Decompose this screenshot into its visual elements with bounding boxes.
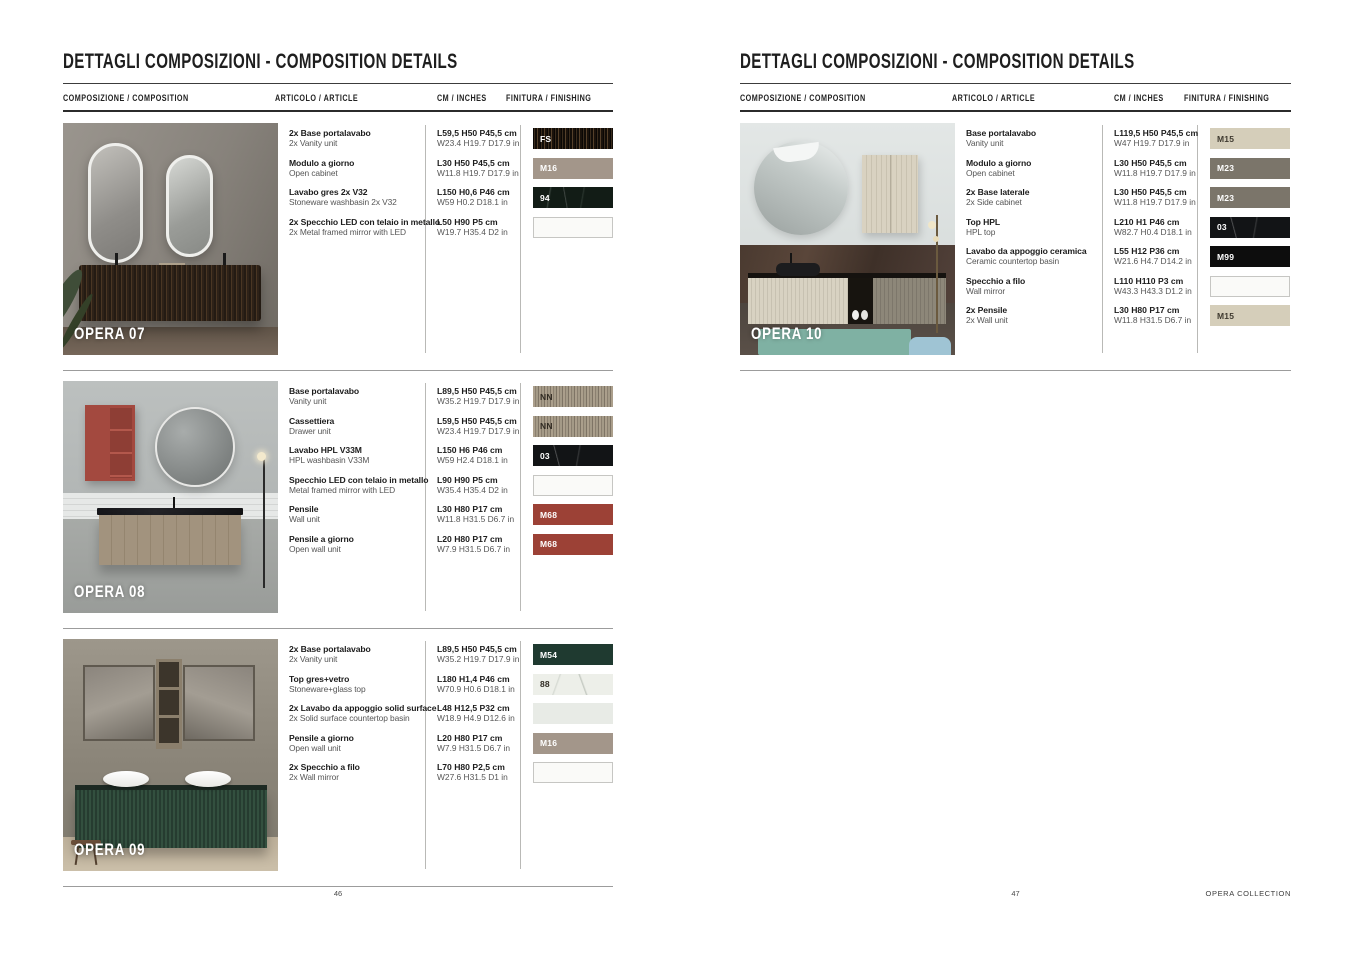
article-cell: Specchio a filo Wall mirror: [966, 276, 1114, 296]
article-name-en: 2x Vanity unit: [289, 654, 437, 664]
dimensions-cell: L70 H80 P2,5 cm W27.6 H31.5 D1 in: [437, 762, 533, 782]
dimensions-cm: L59,5 H50 P45,5 cm: [437, 416, 533, 426]
composition-section: OPERA 10 Base portalavabo Vanity unit L1…: [740, 123, 1291, 355]
finish-swatch: 03: [533, 445, 613, 466]
page-header: DETTAGLI COMPOSIZIONI - COMPOSITION DETA…: [740, 0, 1291, 123]
finish-swatch: [533, 475, 613, 496]
finish-swatch: M99: [1210, 246, 1290, 267]
dimensions-cm: L55 H12 P36 cm: [1114, 246, 1210, 256]
article-name-it: Pensile a giorno: [289, 733, 437, 743]
finish-code: M15: [1217, 134, 1234, 144]
dimensions-cell: L150 H0,6 P46 cm W59 H0.2 D18.1 in: [437, 187, 533, 207]
dimensions-cell: L150 H6 P46 cm W59 H2.4 D18.1 in: [437, 445, 533, 465]
article-name-en: Vanity unit: [966, 138, 1114, 148]
finishing-cell: M15: [1210, 305, 1290, 326]
article-rows: 2x Base portalavabo 2x Vanity unit L89,5…: [289, 644, 613, 792]
dimensions-inches: W35.2 H19.7 D17.9 in: [437, 654, 533, 664]
page-number: 46: [63, 889, 613, 898]
dimensions-cell: L20 H80 P17 cm W7.9 H31.5 D6.7 in: [437, 534, 533, 554]
finish-swatch: M15: [1210, 305, 1290, 326]
dimensions-cm: L110 H110 P3 cm: [1114, 276, 1210, 286]
mirror-shape: [166, 155, 213, 257]
article-rows: Base portalavabo Vanity unit L89,5 H50 P…: [289, 386, 613, 563]
finishing-cell: M15: [1210, 128, 1290, 149]
article-row: 2x Pensile 2x Wall unit L30 H80 P17 cm W…: [966, 305, 1291, 335]
header-rule-heavy: [63, 110, 613, 112]
column-header-composition: COMPOSIZIONE / COMPOSITION: [63, 93, 189, 103]
section-divider: [740, 370, 1291, 371]
article-name-en: HPL washbasin V33M: [289, 455, 437, 465]
header-rule: [63, 83, 613, 84]
vanity-shape: [748, 278, 848, 324]
page-footer: 47 OPERA COLLECTION: [740, 889, 1291, 903]
article-cell: Modulo a giorno Open cabinet: [966, 158, 1114, 178]
dimensions-cm: L30 H50 P45,5 cm: [1114, 187, 1210, 197]
composition-name: OPERA 09: [74, 840, 145, 860]
article-name-it: Lavabo HPL V33M: [289, 445, 437, 455]
article-cell: Cassettiera Drawer unit: [289, 416, 437, 436]
dimensions-cm: L89,5 H50 P45,5 cm: [437, 644, 533, 654]
sections-right: OPERA 10 Base portalavabo Vanity unit L1…: [740, 123, 1291, 381]
article-name-it: Specchio LED con telaio in metallo: [289, 475, 437, 485]
finishing-cell: [533, 762, 613, 783]
dimensions-cell: L89,5 H50 P45,5 cm W35.2 H19.7 D17.9 in: [437, 386, 533, 406]
page-right: DETTAGLI COMPOSIZIONI - COMPOSITION DETA…: [740, 0, 1291, 959]
dimensions-cell: L119,5 H50 P45,5 cm W47 H19.7 D17.9 in: [1114, 128, 1210, 148]
article-name-en: 2x Side cabinet: [966, 197, 1114, 207]
dimensions-inches: W11.8 H31.5 D6.7 in: [1114, 315, 1210, 325]
dimensions-cell: L30 H50 P45,5 cm W11.8 H19.7 D17.9 in: [1114, 187, 1210, 207]
article-row: Lavabo gres 2x V32 Stoneware washbasin 2…: [289, 187, 613, 217]
dimensions-cm: L150 H6 P46 cm: [437, 445, 533, 455]
finish-swatch: M54: [533, 644, 613, 665]
finishing-cell: M23: [1210, 187, 1290, 208]
composition-photo: OPERA 08: [63, 381, 278, 613]
finishing-cell: [533, 475, 613, 496]
article-cell: Modulo a giorno Open cabinet: [289, 158, 437, 178]
article-row: Modulo a giorno Open cabinet L30 H50 P45…: [966, 158, 1291, 188]
finish-code: M23: [1217, 193, 1234, 203]
article-name-it: Base portalavabo: [966, 128, 1114, 138]
catalog-spread: DETTAGLI COMPOSIZIONI - COMPOSITION DETA…: [0, 0, 1356, 959]
article-row: Top HPL HPL top L210 H1 P46 cm W82.7 H0.…: [966, 217, 1291, 247]
dimensions-inches: W27.6 H31.5 D1 in: [437, 772, 533, 782]
floor-lamp-shape: [936, 215, 938, 333]
section-divider: [63, 886, 613, 887]
dimensions-cell: L48 H12,5 P32 cm W18.9 H4.9 D12.6 in: [437, 703, 533, 723]
finishing-cell: M16: [533, 733, 613, 754]
finish-swatch: FS: [533, 128, 613, 149]
article-row: 2x Specchio a filo 2x Wall mirror L70 H8…: [289, 762, 613, 792]
basin-shape: [776, 263, 820, 276]
dimensions-cell: L59,5 H50 P45,5 cm W23.4 H19.7 D17.9 in: [437, 416, 533, 436]
dimensions-cell: L30 H80 P17 cm W11.8 H31.5 D6.7 in: [437, 504, 533, 524]
finishing-cell: 94: [533, 187, 613, 208]
article-name-it: Specchio a filo: [966, 276, 1114, 286]
article-row: Specchio a filo Wall mirror L110 H110 P3…: [966, 276, 1291, 306]
dimensions-inches: W82.7 H0.4 D18.1 in: [1114, 227, 1210, 237]
dimensions-inches: W43.3 H43.3 D1.2 in: [1114, 286, 1210, 296]
finishing-cell: NN: [533, 386, 613, 407]
finish-code: NN: [540, 392, 553, 402]
composition-name: OPERA 08: [74, 582, 145, 602]
dimensions-cell: L55 H12 P36 cm W21.6 H4.7 D14.2 in: [1114, 246, 1210, 266]
vanity-shape: [99, 515, 241, 565]
page-title: DETTAGLI COMPOSIZIONI - COMPOSITION DETA…: [740, 50, 1135, 74]
wall-cabinet-shape: [862, 155, 918, 233]
article-name-en: 2x Metal framed mirror with LED: [289, 227, 437, 237]
article-name-en: Vanity unit: [289, 396, 437, 406]
article-name-it: Pensile: [289, 504, 437, 514]
finish-swatch: M68: [533, 534, 613, 555]
composition-name: OPERA 10: [751, 324, 822, 344]
page-left: DETTAGLI COMPOSIZIONI - COMPOSITION DETA…: [63, 0, 613, 959]
mirror-shape: [754, 141, 848, 235]
page-header: DETTAGLI COMPOSIZIONI - COMPOSITION DETA…: [63, 0, 613, 123]
article-row: Cassettiera Drawer unit L59,5 H50 P45,5 …: [289, 416, 613, 446]
dimensions-cell: L20 H80 P17 cm W7.9 H31.5 D6.7 in: [437, 733, 533, 753]
mirror-shape: [83, 665, 155, 741]
finishing-cell: [533, 217, 613, 238]
countertop-shape: [97, 508, 243, 515]
dimensions-inches: W35.2 H19.7 D17.9 in: [437, 396, 533, 406]
composition-photo: OPERA 09: [63, 639, 278, 871]
dimensions-cm: L30 H50 P45,5 cm: [437, 158, 533, 168]
article-name-it: Base portalavabo: [289, 386, 437, 396]
mirror-shape: [155, 407, 235, 487]
column-header-finishing: FINITURA / FINISHING: [506, 93, 591, 103]
article-cell: 2x Specchio a filo 2x Wall mirror: [289, 762, 437, 782]
finish-swatch: M16: [533, 158, 613, 179]
article-cell: Pensile Wall unit: [289, 504, 437, 524]
dimensions-cm: L180 H1,4 P46 cm: [437, 674, 533, 684]
dimensions-cell: L110 H110 P3 cm W43.3 H43.3 D1.2 in: [1114, 276, 1210, 296]
article-cell: 2x Base portalavabo 2x Vanity unit: [289, 644, 437, 664]
finish-swatch: M68: [533, 504, 613, 525]
dimensions-inches: W19.7 H35.4 D2 in: [437, 227, 533, 237]
article-name-en: Wall unit: [289, 514, 437, 524]
article-name-it: Lavabo da appoggio ceramica: [966, 246, 1114, 256]
column-header-cm-inches: CM / INCHES: [437, 93, 487, 103]
composition-section: OPERA 08 Base portalavabo Vanity unit L8…: [63, 381, 613, 613]
finishing-cell: M68: [533, 504, 613, 525]
dimensions-inches: W23.4 H19.7 D17.9 in: [437, 426, 533, 436]
finish-code: 03: [1217, 222, 1227, 232]
dimensions-inches: W11.8 H19.7 D17.9 in: [1114, 197, 1210, 207]
finish-code: 88: [540, 679, 550, 689]
article-rows: 2x Base portalavabo 2x Vanity unit L59,5…: [289, 128, 613, 246]
article-row: Top gres+vetro Stoneware+glass top L180 …: [289, 674, 613, 704]
article-row: Pensile a giorno Open wall unit L20 H80 …: [289, 534, 613, 564]
basin-shape: [103, 771, 149, 787]
dimensions-inches: W59 H2.4 D18.1 in: [437, 455, 533, 465]
header-rule: [740, 83, 1291, 84]
dimensions-cm: L119,5 H50 P45,5 cm: [1114, 128, 1210, 138]
article-name-en: Wall mirror: [966, 286, 1114, 296]
article-name-en: Open wall unit: [289, 544, 437, 554]
column-header-composition: COMPOSIZIONE / COMPOSITION: [740, 93, 866, 103]
finish-code: M23: [1217, 163, 1234, 173]
article-cell: Lavabo da appoggio ceramica Ceramic coun…: [966, 246, 1114, 266]
article-row: Pensile a giorno Open wall unit L20 H80 …: [289, 733, 613, 763]
finish-swatch: 94: [533, 187, 613, 208]
dimensions-inches: W35.4 H35.4 D2 in: [437, 485, 533, 495]
article-cell: 2x Base laterale 2x Side cabinet: [966, 187, 1114, 207]
finish-code: M54: [540, 650, 557, 660]
article-cell: Lavabo HPL V33M HPL washbasin V33M: [289, 445, 437, 465]
finishing-cell: M16: [533, 158, 613, 179]
article-name-en: HPL top: [966, 227, 1114, 237]
composition-photo: OPERA 07: [63, 123, 278, 355]
finish-swatch: 88: [533, 674, 613, 695]
page-title: DETTAGLI COMPOSIZIONI - COMPOSITION DETA…: [63, 50, 458, 74]
finish-code: M68: [540, 539, 557, 549]
finish-swatch: [533, 703, 613, 724]
dimensions-cell: L30 H50 P45,5 cm W11.8 H19.7 D17.9 in: [1114, 158, 1210, 178]
dimensions-cell: L30 H50 P45,5 cm W11.8 H19.7 D17.9 in: [437, 158, 533, 178]
finish-swatch: [533, 217, 613, 238]
finish-code: M68: [540, 510, 557, 520]
article-row: Base portalavabo Vanity unit L89,5 H50 P…: [289, 386, 613, 416]
dimensions-cm: L30 H80 P17 cm: [437, 504, 533, 514]
dimensions-cm: L20 H80 P17 cm: [437, 733, 533, 743]
finish-swatch: NN: [533, 386, 613, 407]
dimensions-cm: L50 H90 P5 cm: [437, 217, 533, 227]
article-name-en: Ceramic countertop basin: [966, 256, 1114, 266]
finishing-cell: 88: [533, 674, 613, 695]
dimensions-cm: L90 H90 P5 cm: [437, 475, 533, 485]
dimensions-inches: W11.8 H31.5 D6.7 in: [437, 514, 533, 524]
column-header-article: ARTICOLO / ARTICLE: [275, 93, 358, 103]
article-row: Modulo a giorno Open cabinet L30 H50 P45…: [289, 158, 613, 188]
dimensions-inches: W11.8 H19.7 D17.9 in: [1114, 168, 1210, 178]
article-cell: Base portalavabo Vanity unit: [966, 128, 1114, 148]
article-name-it: Pensile a giorno: [289, 534, 437, 544]
article-name-it: Modulo a giorno: [289, 158, 437, 168]
finish-code: FS: [540, 134, 551, 144]
article-row: 2x Base laterale 2x Side cabinet L30 H50…: [966, 187, 1291, 217]
article-row: 2x Base portalavabo 2x Vanity unit L59,5…: [289, 128, 613, 158]
article-name-it: Lavabo gres 2x V32: [289, 187, 437, 197]
dimensions-cm: L30 H80 P17 cm: [1114, 305, 1210, 315]
dimensions-cell: L210 H1 P46 cm W82.7 H0.4 D18.1 in: [1114, 217, 1210, 237]
collection-name: OPERA COLLECTION: [1206, 889, 1291, 898]
dimensions-cm: L20 H80 P17 cm: [437, 534, 533, 544]
article-rows: Base portalavabo Vanity unit L119,5 H50 …: [966, 128, 1291, 335]
sections-left: OPERA 07 2x Base portalavabo 2x Vanity u…: [63, 123, 613, 897]
column-header-cm-inches: CM / INCHES: [1114, 93, 1164, 103]
dimensions-cell: L50 H90 P5 cm W19.7 H35.4 D2 in: [437, 217, 533, 237]
finishing-cell: FS: [533, 128, 613, 149]
article-cell: Base portalavabo Vanity unit: [289, 386, 437, 406]
article-cell: 2x Base portalavabo 2x Vanity unit: [289, 128, 437, 148]
article-row: Base portalavabo Vanity unit L119,5 H50 …: [966, 128, 1291, 158]
article-cell: 2x Specchio LED con telaio in metallo 2x…: [289, 217, 437, 237]
dimensions-cell: L90 H90 P5 cm W35.4 H35.4 D2 in: [437, 475, 533, 495]
article-cell: Lavabo gres 2x V32 Stoneware washbasin 2…: [289, 187, 437, 207]
column-header-finishing: FINITURA / FINISHING: [1184, 93, 1269, 103]
article-name-it: Top HPL: [966, 217, 1114, 227]
basin-shape: [185, 771, 231, 787]
finishing-cell: 03: [533, 445, 613, 466]
finish-swatch: 03: [1210, 217, 1290, 238]
column-header-article: ARTICOLO / ARTICLE: [952, 93, 1035, 103]
dimensions-inches: W23.4 H19.7 D17.9 in: [437, 138, 533, 148]
article-row: Lavabo da appoggio ceramica Ceramic coun…: [966, 246, 1291, 276]
article-name-en: 2x Solid surface countertop basin: [289, 713, 437, 723]
open-shelf-shape: [156, 659, 182, 749]
finish-code: M16: [540, 738, 557, 748]
vanity-shape: [79, 265, 261, 321]
article-name-en: Drawer unit: [289, 426, 437, 436]
article-name-it: Cassettiera: [289, 416, 437, 426]
finish-swatch: [1210, 276, 1290, 297]
article-name-it: Modulo a giorno: [966, 158, 1114, 168]
dimensions-cell: L180 H1,4 P46 cm W70.9 H0.6 D18.1 in: [437, 674, 533, 694]
composition-photo: OPERA 10: [740, 123, 955, 355]
article-name-it: 2x Lavabo da appoggio solid surface: [289, 703, 437, 713]
finish-code: M15: [1217, 311, 1234, 321]
article-row: Specchio LED con telaio in metallo Metal…: [289, 475, 613, 505]
composition-name: OPERA 07: [74, 324, 145, 344]
wall-cabinet-shape: [85, 405, 135, 481]
finishing-cell: [533, 703, 613, 724]
dimensions-inches: W11.8 H19.7 D17.9 in: [437, 168, 533, 178]
article-row: Lavabo HPL V33M HPL washbasin V33M L150 …: [289, 445, 613, 475]
section-divider: [63, 370, 613, 371]
finish-swatch: M23: [1210, 158, 1290, 179]
article-name-it: 2x Pensile: [966, 305, 1114, 315]
article-name-en: Stoneware+glass top: [289, 684, 437, 694]
article-cell: 2x Pensile 2x Wall unit: [966, 305, 1114, 325]
composition-section: OPERA 09 2x Base portalavabo 2x Vanity u…: [63, 639, 613, 871]
article-cell: Pensile a giorno Open wall unit: [289, 534, 437, 554]
article-name-en: 2x Wall unit: [966, 315, 1114, 325]
article-cell: 2x Lavabo da appoggio solid surface 2x S…: [289, 703, 437, 723]
finish-swatch: NN: [533, 416, 613, 437]
finish-swatch: M15: [1210, 128, 1290, 149]
article-name-en: 2x Wall mirror: [289, 772, 437, 782]
article-name-it: 2x Base portalavabo: [289, 644, 437, 654]
finishing-cell: M54: [533, 644, 613, 665]
dimensions-cm: L70 H80 P2,5 cm: [437, 762, 533, 772]
article-name-it: 2x Specchio a filo: [289, 762, 437, 772]
article-name-en: Open cabinet: [289, 168, 437, 178]
dimensions-inches: W47 H19.7 D17.9 in: [1114, 138, 1210, 148]
dimensions-cm: L210 H1 P46 cm: [1114, 217, 1210, 227]
finish-code: M16: [540, 163, 557, 173]
composition-section: OPERA 07 2x Base portalavabo 2x Vanity u…: [63, 123, 613, 355]
article-cell: Pensile a giorno Open wall unit: [289, 733, 437, 753]
finish-swatch: M16: [533, 733, 613, 754]
mirror-shape: [88, 143, 143, 263]
finishing-cell: NN: [533, 416, 613, 437]
article-name-en: Metal framed mirror with LED: [289, 485, 437, 495]
dimensions-cm: L48 H12,5 P32 cm: [437, 703, 533, 713]
mirror-shape: [183, 665, 255, 741]
dimensions-inches: W70.9 H0.6 D18.1 in: [437, 684, 533, 694]
article-cell: Top gres+vetro Stoneware+glass top: [289, 674, 437, 694]
article-row: 2x Specchio LED con telaio in metallo 2x…: [289, 217, 613, 247]
finishing-cell: M23: [1210, 158, 1290, 179]
section-divider: [63, 628, 613, 629]
dimensions-inches: W7.9 H31.5 D6.7 in: [437, 743, 533, 753]
article-row: Pensile Wall unit L30 H80 P17 cm W11.8 H…: [289, 504, 613, 534]
dimensions-cm: L150 H0,6 P46 cm: [437, 187, 533, 197]
article-name-it: 2x Base portalavabo: [289, 128, 437, 138]
article-name-en: Open wall unit: [289, 743, 437, 753]
page-footer: 46: [63, 889, 613, 903]
finishing-cell: M99: [1210, 246, 1290, 267]
dimensions-inches: W21.6 H4.7 D14.2 in: [1114, 256, 1210, 266]
finishing-cell: 03: [1210, 217, 1290, 238]
floor-lamp-shape: [263, 456, 265, 588]
article-row: 2x Base portalavabo 2x Vanity unit L89,5…: [289, 644, 613, 674]
finish-swatch: [533, 762, 613, 783]
dimensions-inches: W59 H0.2 D18.1 in: [437, 197, 533, 207]
dimensions-cell: L59,5 H50 P45,5 cm W23.4 H19.7 D17.9 in: [437, 128, 533, 148]
finish-code: NN: [540, 421, 553, 431]
article-cell: Top HPL HPL top: [966, 217, 1114, 237]
finishing-cell: [1210, 276, 1290, 297]
open-shelf-shape: [848, 278, 873, 324]
article-name-it: Top gres+vetro: [289, 674, 437, 684]
article-name-en: Stoneware washbasin 2x V32: [289, 197, 437, 207]
dimensions-cell: L30 H80 P17 cm W11.8 H31.5 D6.7 in: [1114, 305, 1210, 325]
article-name-en: Open cabinet: [966, 168, 1114, 178]
dimensions-cell: L89,5 H50 P45,5 cm W35.2 H19.7 D17.9 in: [437, 644, 533, 664]
article-name-it: 2x Base laterale: [966, 187, 1114, 197]
dimensions-inches: W7.9 H31.5 D6.7 in: [437, 544, 533, 554]
finish-swatch: M23: [1210, 187, 1290, 208]
finish-code: 03: [540, 451, 550, 461]
finishing-cell: M68: [533, 534, 613, 555]
dimensions-cm: L30 H50 P45,5 cm: [1114, 158, 1210, 168]
article-cell: Specchio LED con telaio in metallo Metal…: [289, 475, 437, 495]
finish-code: 94: [540, 193, 550, 203]
dimensions-inches: W18.9 H4.9 D12.6 in: [437, 713, 533, 723]
dimensions-cm: L59,5 H50 P45,5 cm: [437, 128, 533, 138]
article-name-en: 2x Vanity unit: [289, 138, 437, 148]
article-name-it: 2x Specchio LED con telaio in metallo: [289, 217, 437, 227]
finish-code: M99: [1217, 252, 1234, 262]
header-rule-heavy: [740, 110, 1291, 112]
article-row: 2x Lavabo da appoggio solid surface 2x S…: [289, 703, 613, 733]
dimensions-cm: L89,5 H50 P45,5 cm: [437, 386, 533, 396]
